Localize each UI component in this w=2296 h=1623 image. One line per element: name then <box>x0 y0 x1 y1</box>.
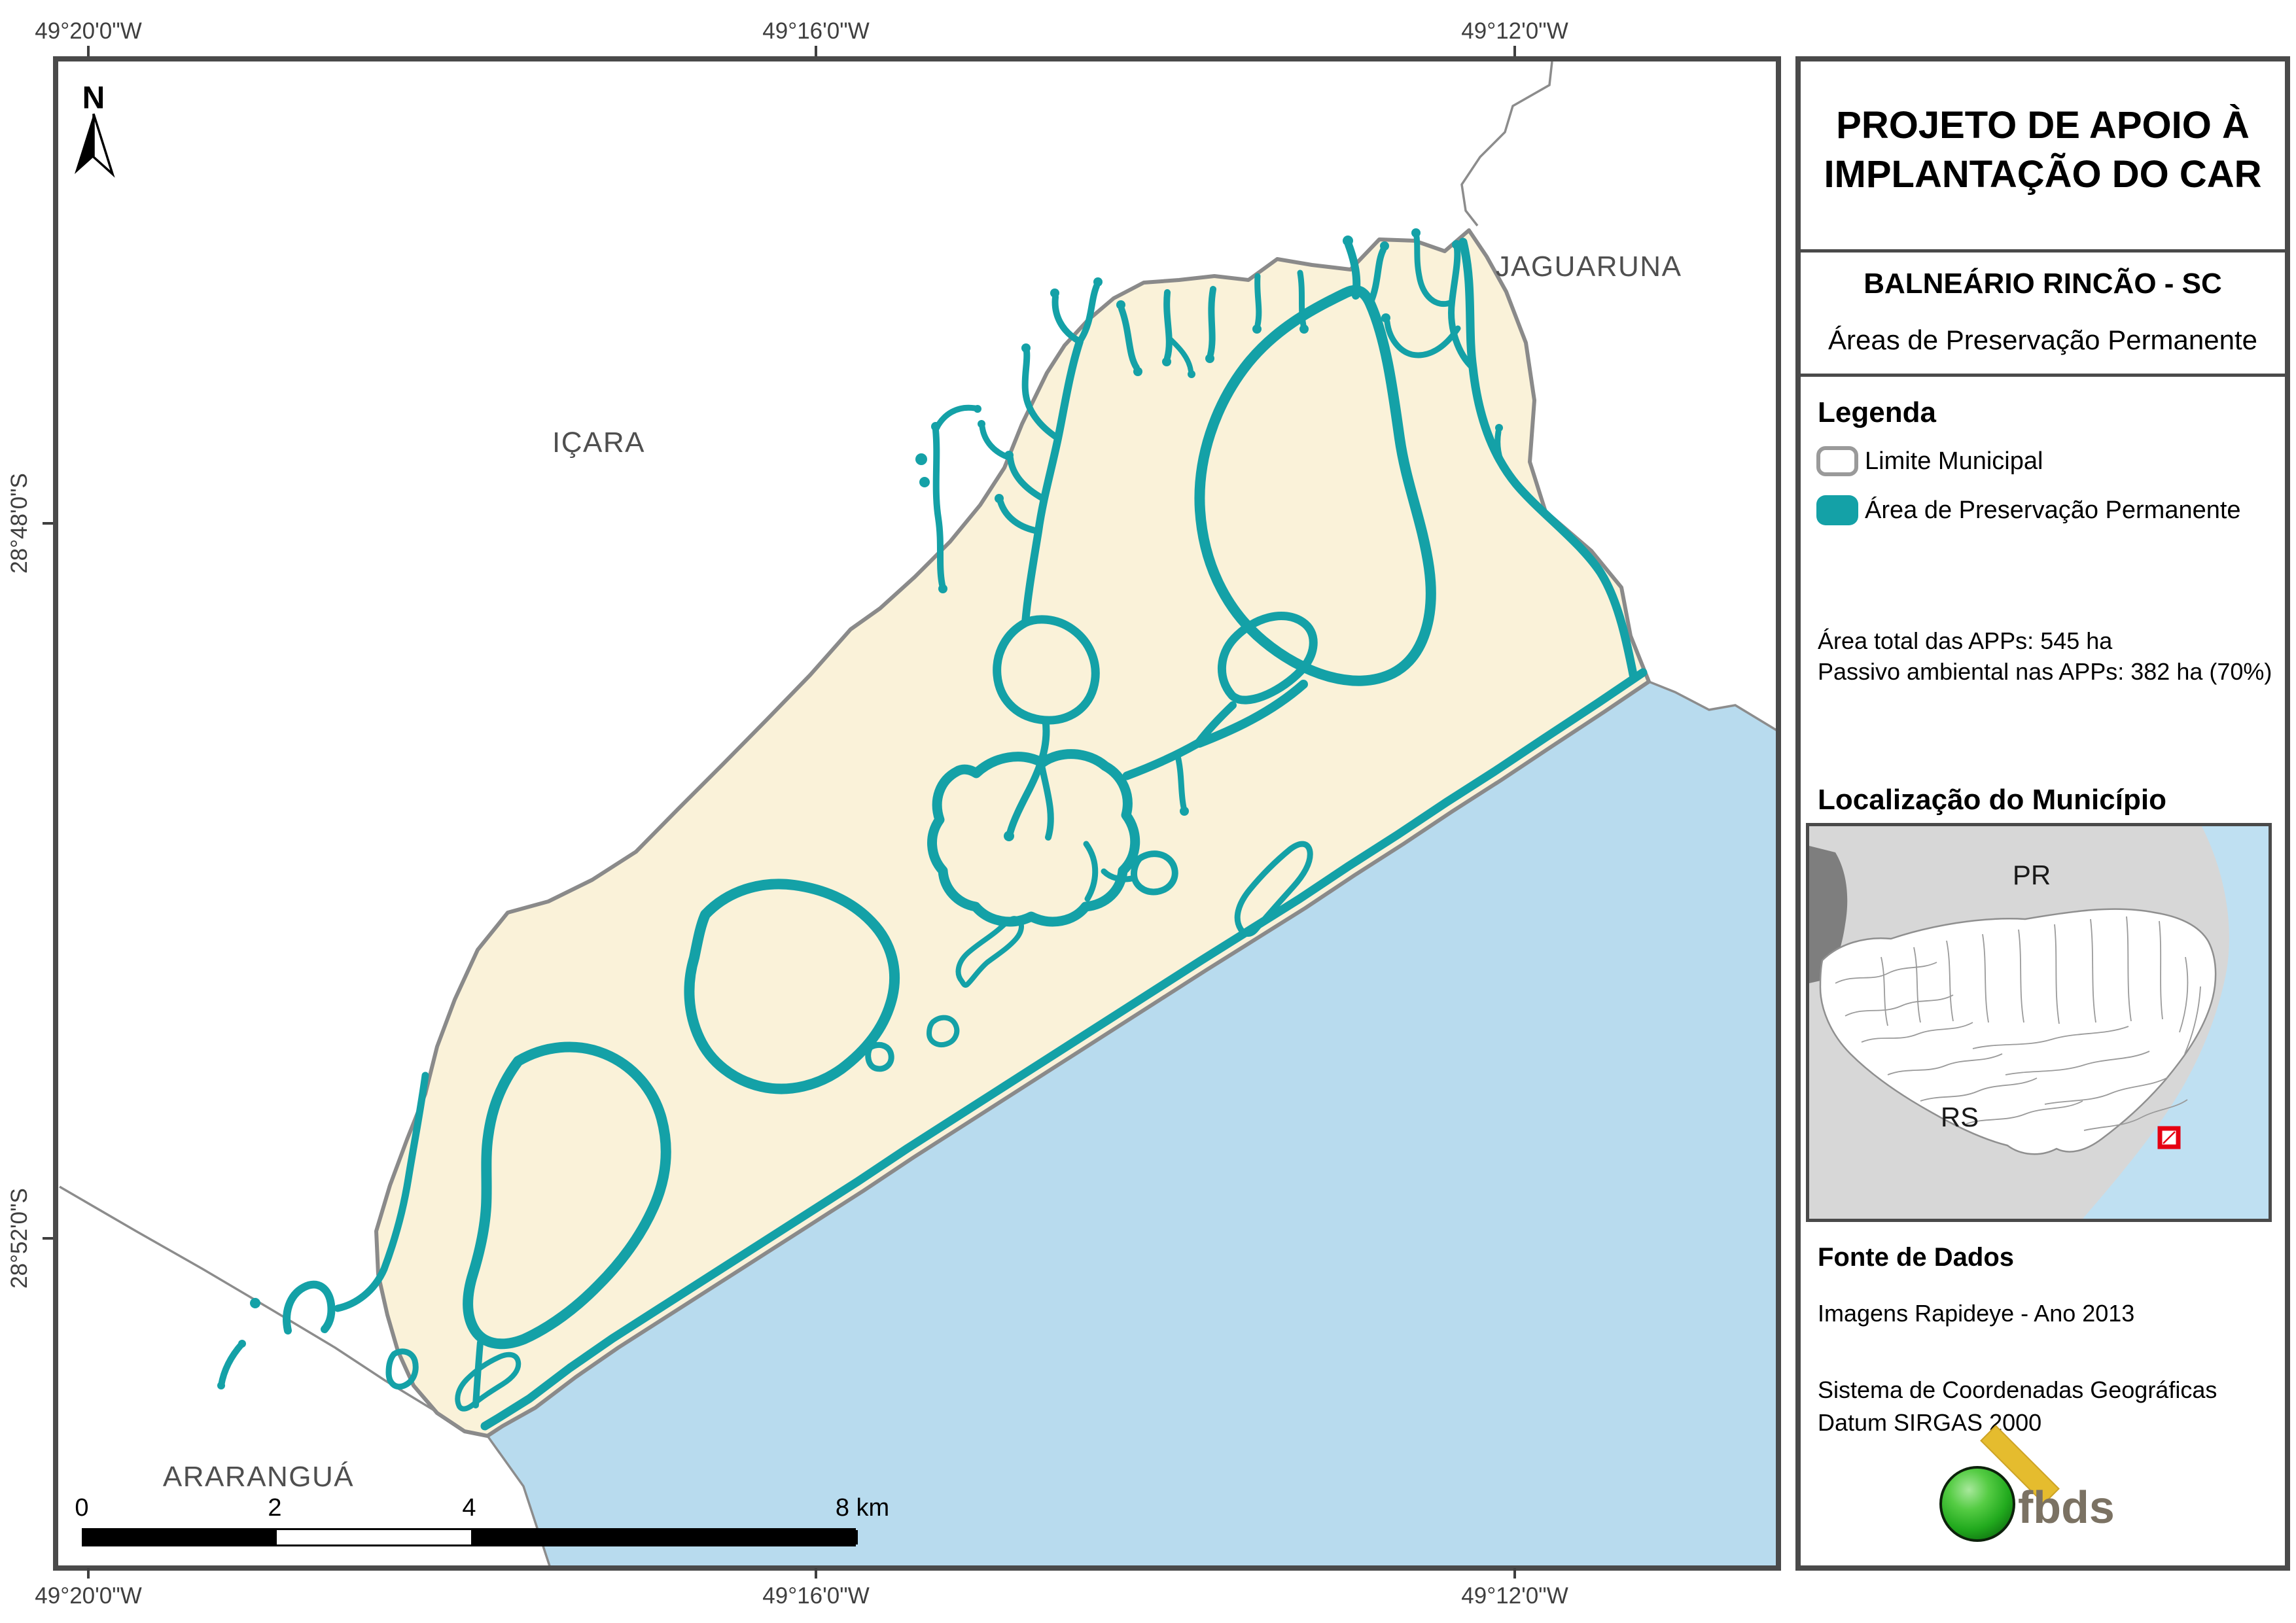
neighbor-label-ararangua: ARARANGUÁ <box>163 1461 354 1493</box>
scale-label-8km: 8 km <box>836 1494 889 1522</box>
tick-left-1 <box>43 522 53 525</box>
map-title-line1: PROJETO DE APOIO À <box>1801 101 2285 150</box>
source-line-crs: Sistema de Coordenadas Geográficas <box>1818 1374 2217 1406</box>
coord-bottom-1: 49°20'0"W <box>35 1583 141 1609</box>
tick-bottom-3 <box>1513 1568 1516 1579</box>
map-canvas: N JAGUARUNA IÇARA ARARANGUÁ <box>53 56 1781 1571</box>
source-line-imagery: Imagens Rapideye - Ano 2013 <box>1818 1297 2134 1330</box>
coord-left-1: 28°48'0"S <box>7 473 33 574</box>
coord-bottom-3: 49°12'0"W <box>1461 1583 1568 1609</box>
scale-bar <box>82 1528 856 1546</box>
tick-top-2 <box>815 46 817 56</box>
app-swatch-icon <box>1816 495 1858 525</box>
map-geometry <box>58 61 1776 1565</box>
layout-side-panel: PROJETO DE APOIO À IMPLANTAÇÃO DO CAR BA… <box>1795 56 2290 1571</box>
tick-bottom-1 <box>87 1568 90 1579</box>
scale-seg-black-2 <box>471 1530 858 1544</box>
limite-municipal-swatch-icon <box>1816 446 1858 476</box>
scale-seg-white <box>277 1530 471 1544</box>
scale-label-0: 0 <box>75 1494 88 1522</box>
legend-item-limite-municipal: Limite Municipal <box>1816 446 2043 476</box>
inset-heading: Localização do Município <box>1818 784 2166 816</box>
coord-top-3: 49°12'0"W <box>1461 18 1568 44</box>
legend-heading: Legenda <box>1818 396 1936 429</box>
north-arrow-icon <box>75 114 113 174</box>
tick-top-1 <box>87 46 90 56</box>
stats-passivo-apps: Passivo ambiental nas APPs: 382 ha (70%) <box>1818 657 2272 688</box>
state-locator-map: PR RS <box>1806 823 2272 1222</box>
tick-top-3 <box>1513 46 1516 56</box>
inset-label-pr: PR <box>2013 860 2051 891</box>
map-title: PROJETO DE APOIO À IMPLANTAÇÃO DO CAR <box>1801 101 2285 200</box>
coord-left-2: 28°52'0"S <box>7 1188 33 1289</box>
map-subtitle: Áreas de Preservação Permanente <box>1801 324 2285 356</box>
north-label: N <box>82 80 105 116</box>
fbds-logo: fbds <box>1801 1435 2285 1560</box>
fbds-logo-globe-icon <box>1939 1466 2015 1542</box>
legend-item-label: Área de Preservação Permanente <box>1865 497 2241 525</box>
source-coordinate-system: Sistema de Coordenadas Geográficas Datum… <box>1818 1374 2217 1439</box>
coord-top-2: 49°16'0"W <box>762 18 869 44</box>
stats-total-apps: Área total das APPs: 545 ha <box>1818 626 2272 657</box>
fbds-logo-text: fbds <box>2018 1481 2115 1533</box>
jaguaruna-border-line <box>1462 61 1552 226</box>
source-line-datum: Datum SIRGAS 2000 <box>1818 1406 2217 1439</box>
municipality-name: BALNEÁRIO RINCÃO - SC <box>1801 268 2285 300</box>
scale-label-2: 2 <box>268 1494 281 1522</box>
map-title-line2: IMPLANTAÇÃO DO CAR <box>1801 150 2285 199</box>
neighbor-label-icara: IÇARA <box>552 427 645 459</box>
tick-left-2 <box>43 1237 53 1240</box>
legend-item-label: Limite Municipal <box>1865 447 2043 476</box>
panel-divider-1 <box>1801 249 2285 253</box>
map-layout-page: N JAGUARUNA IÇARA ARARANGUÁ 49°20'0"W 49… <box>0 0 2296 1623</box>
tick-bottom-2 <box>815 1568 817 1579</box>
scale-seg-black-1 <box>84 1530 277 1544</box>
source-heading: Fonte de Dados <box>1818 1243 2014 1272</box>
coord-bottom-2: 49°16'0"W <box>762 1583 869 1609</box>
app-statistics: Área total das APPs: 545 ha Passivo ambi… <box>1818 626 2272 688</box>
scale-label-4: 4 <box>462 1494 476 1522</box>
neighbor-label-jaguaruna: JAGUARUNA <box>1496 251 1682 283</box>
legend-item-app: Área de Preservação Permanente <box>1816 495 2241 525</box>
inset-label-rs: RS <box>1941 1102 1979 1133</box>
coord-top-1: 49°20'0"W <box>35 18 141 44</box>
panel-divider-2 <box>1801 374 2285 377</box>
